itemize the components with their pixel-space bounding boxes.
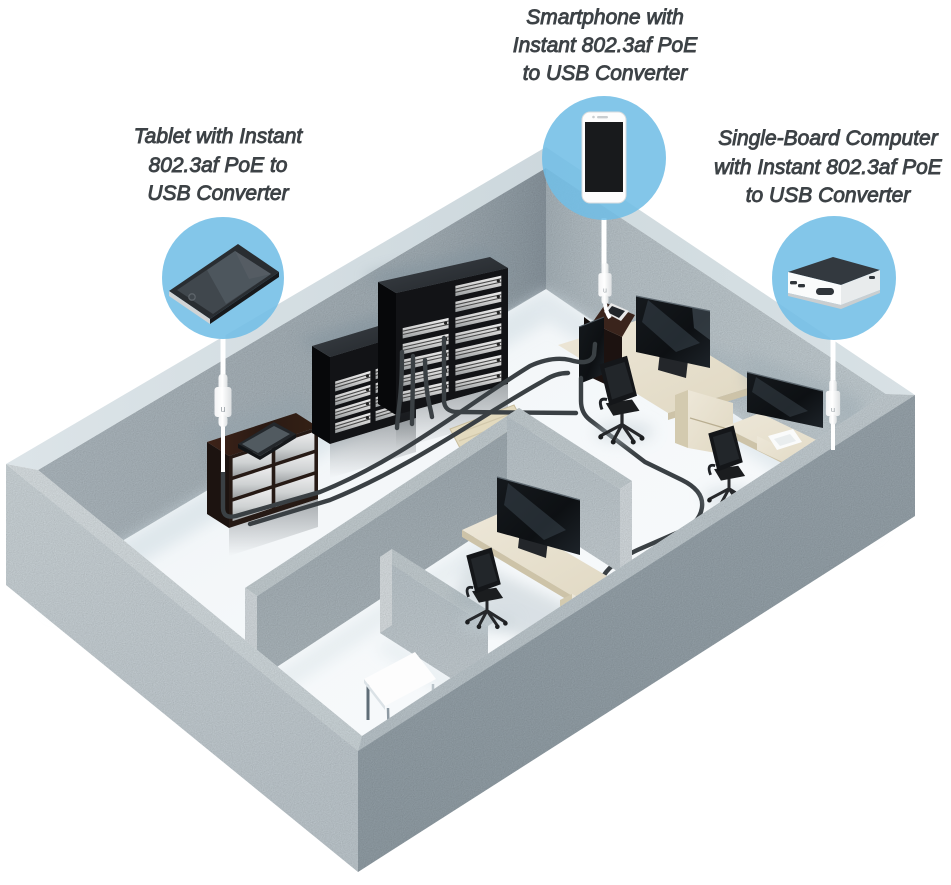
svg-text:to USB Converter: to USB Converter: [523, 62, 689, 85]
svg-text:u: u: [831, 405, 835, 414]
svg-text:USB Converter: USB Converter: [147, 182, 289, 205]
svg-text:Single-Board Computer: Single-Board Computer: [718, 127, 938, 150]
svg-text:Tablet with Instant: Tablet with Instant: [134, 125, 304, 148]
svg-text:Smartphone with: Smartphone with: [526, 6, 684, 29]
svg-text:with Instant 802.3af PoE: with Instant 802.3af PoE: [714, 156, 943, 179]
svg-text:Instant 802.3af PoE: Instant 802.3af PoE: [513, 34, 698, 57]
svg-text:u: u: [603, 288, 607, 295]
svg-text:to USB Converter: to USB Converter: [746, 184, 912, 207]
svg-text:u: u: [220, 404, 225, 414]
svg-text:802.3af PoE to: 802.3af PoE to: [149, 154, 288, 177]
